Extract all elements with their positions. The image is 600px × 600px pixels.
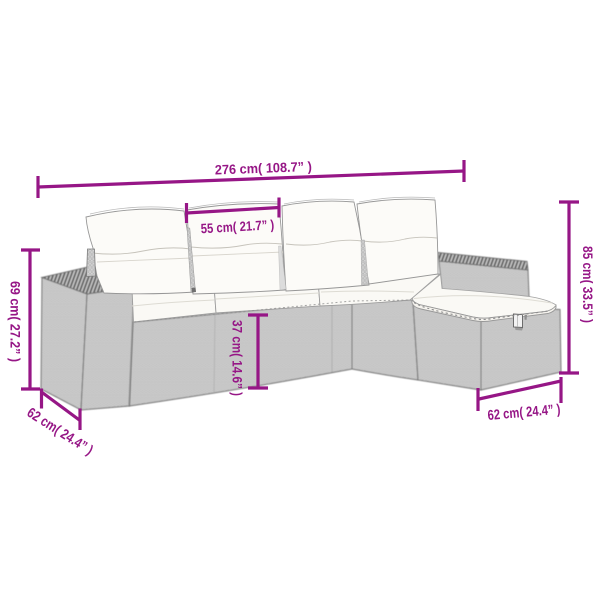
svg-text:85 cm( 33.5” ): 85 cm( 33.5” ) [580,246,595,323]
svg-text:37 cm( 14.6” ): 37 cm( 14.6” ) [230,320,245,396]
svg-text:69 cm( 27.2” ): 69 cm( 27.2” ) [8,281,23,362]
